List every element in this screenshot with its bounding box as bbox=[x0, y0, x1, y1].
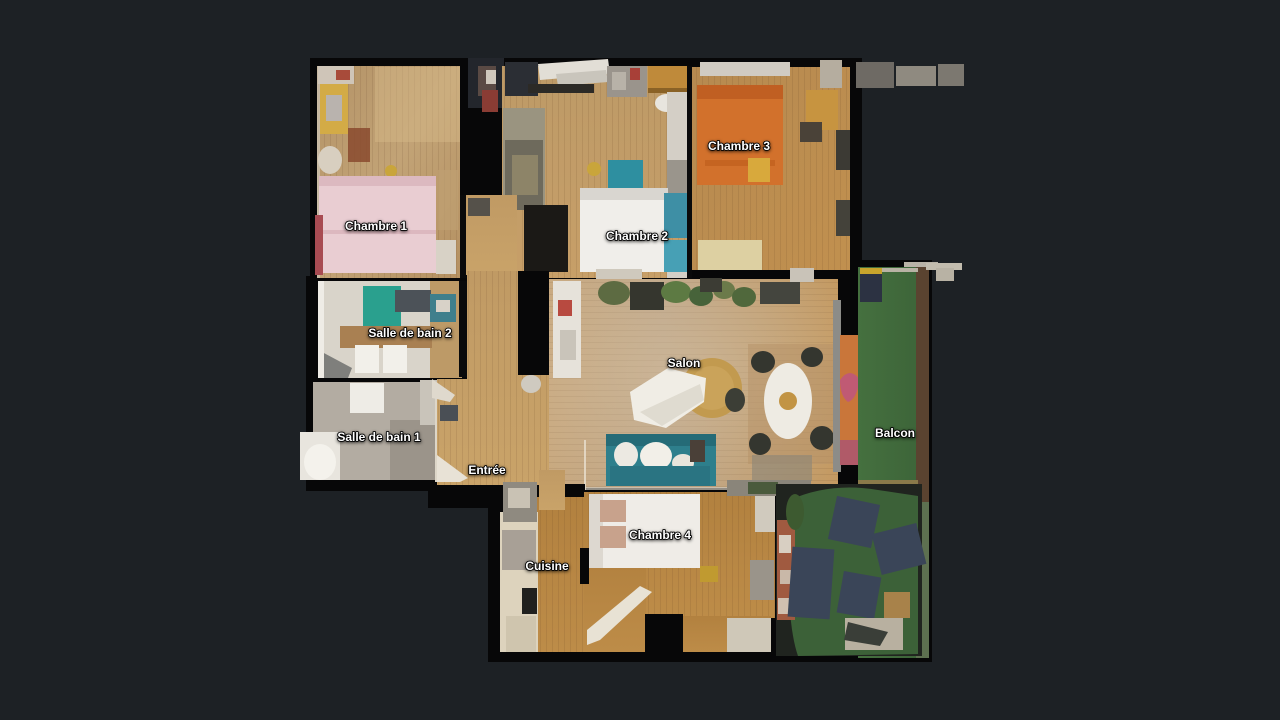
svg-text:Chambre 2: Chambre 2 bbox=[606, 229, 668, 243]
svg-text:Salon: Salon bbox=[668, 356, 701, 370]
svg-text:Entrée: Entrée bbox=[468, 463, 506, 477]
svg-text:Chambre 3: Chambre 3 bbox=[708, 139, 770, 153]
svg-text:Balcon: Balcon bbox=[875, 426, 915, 440]
svg-text:Salle de bain 1: Salle de bain 1 bbox=[337, 430, 421, 444]
svg-text:Chambre 1: Chambre 1 bbox=[345, 219, 407, 233]
svg-text:Salle de bain 2: Salle de bain 2 bbox=[368, 326, 452, 340]
svg-text:Chambre 4: Chambre 4 bbox=[629, 528, 691, 542]
svg-text:Cuisine: Cuisine bbox=[525, 559, 569, 573]
